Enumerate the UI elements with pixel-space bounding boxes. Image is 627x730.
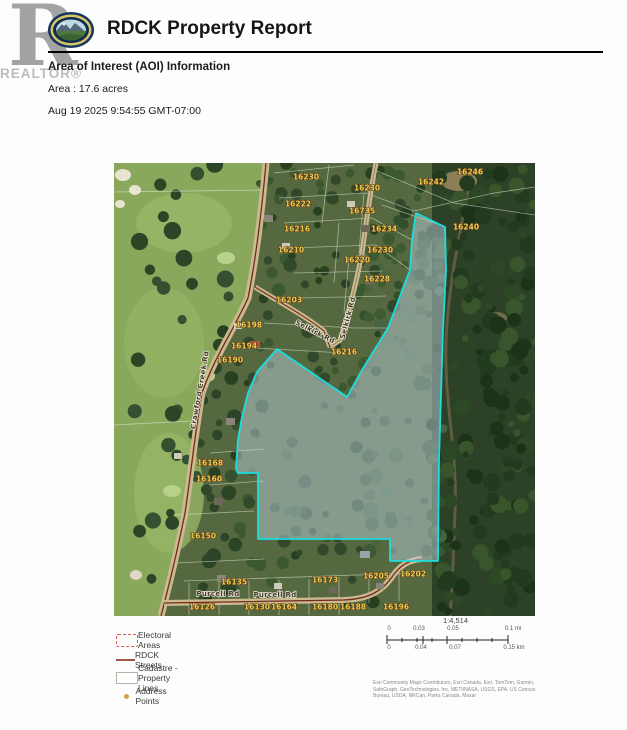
cadastre-swatch-icon	[116, 672, 138, 684]
property-report-page: R REALTOR® RDCK Property Report Area of …	[0, 0, 627, 730]
legend-item-electoral-areas: Electoral Areas	[116, 632, 177, 648]
svg-text:16202: 16202	[400, 570, 426, 579]
svg-text:16735: 16735	[349, 207, 375, 216]
electoral-areas-swatch-icon	[116, 634, 138, 647]
svg-text:16173: 16173	[312, 576, 338, 585]
svg-text:16230: 16230	[367, 246, 393, 255]
svg-text:16160: 16160	[196, 475, 222, 484]
svg-text:16216: 16216	[331, 348, 357, 357]
aerial-map-figure: Selkirk RdSelkirk RdCrawford Creek RdPur…	[114, 163, 535, 616]
legend-item-address-points: Address Points	[116, 688, 175, 704]
svg-text:16234: 16234	[371, 225, 397, 234]
rdck-logo-icon	[47, 11, 95, 54]
svg-text:16228: 16228	[364, 275, 390, 284]
svg-text:16230: 16230	[293, 173, 319, 182]
svg-text:16194: 16194	[231, 342, 257, 351]
report-timestamp: Aug 19 2025 9:54:55 GMT-07:00	[48, 105, 201, 117]
svg-text:16198: 16198	[236, 321, 262, 330]
svg-text:16220: 16220	[344, 256, 370, 265]
address-points-swatch-icon	[116, 694, 135, 699]
svg-text:16196: 16196	[383, 603, 409, 612]
svg-text:16188: 16188	[340, 603, 366, 612]
tick-label: 0.15 km	[503, 645, 524, 651]
svg-text:16130: 16130	[244, 603, 270, 612]
svg-text:16164: 16164	[271, 603, 297, 612]
svg-text:Purcell Rd: Purcell Rd	[253, 591, 296, 599]
tick-label: 0.03	[413, 626, 425, 632]
svg-text:16203: 16203	[276, 296, 302, 305]
tick-label: 0.04	[415, 645, 427, 651]
svg-text:16240: 16240	[453, 223, 479, 232]
svg-text:16216: 16216	[284, 225, 310, 234]
attribution-line: Esri Community Maps Contributors, Esri C…	[373, 680, 551, 687]
svg-text:16242: 16242	[418, 178, 444, 187]
scale-miles-labels: 0 0.03 0.05 0.1 mi	[373, 626, 549, 634]
scale-ratio: 1:4,514	[443, 616, 468, 625]
svg-text:16168: 16168	[197, 459, 223, 468]
legend-label: Electoral Areas	[138, 630, 177, 650]
svg-text:16126: 16126	[189, 603, 215, 612]
scale-bar	[385, 635, 515, 645]
svg-text:16230: 16230	[354, 184, 380, 193]
svg-text:16205: 16205	[363, 572, 389, 581]
rdck-streets-swatch-icon	[116, 659, 135, 662]
map-attribution: Esri Community Maps Contributors, Esri C…	[373, 680, 551, 700]
svg-text:16222: 16222	[285, 200, 311, 209]
scale-km-labels: 0 0.04 0.07 0.15 km	[373, 645, 549, 653]
svg-text:16246: 16246	[457, 168, 483, 177]
tick-label: 0.1 mi	[505, 626, 521, 632]
header-divider	[48, 51, 603, 53]
tick-label: 0.07	[449, 645, 461, 651]
legend-item-cadastre: Cadastre - Property Lines	[116, 670, 179, 686]
svg-text:16180: 16180	[312, 603, 338, 612]
svg-text:Purcell Rd: Purcell Rd	[196, 590, 239, 598]
svg-text:16190: 16190	[217, 356, 243, 365]
tick-label: 0	[387, 626, 390, 632]
aoi-area-value: Area : 17.6 acres	[48, 83, 128, 95]
tick-label: 0.05	[447, 626, 459, 632]
aoi-section-heading: Area of Interest (AOI) Information	[48, 61, 230, 73]
svg-text:16150: 16150	[190, 532, 216, 541]
svg-text:16135: 16135	[221, 578, 247, 587]
tick-label: 0	[387, 645, 390, 651]
svg-text:16210: 16210	[278, 246, 304, 255]
page-title: RDCK Property Report	[107, 18, 312, 40]
attribution-line: Bureau, USDA, NRCan, Parks Canada, Maxar	[373, 693, 551, 700]
legend-label: Address Points	[135, 686, 175, 706]
